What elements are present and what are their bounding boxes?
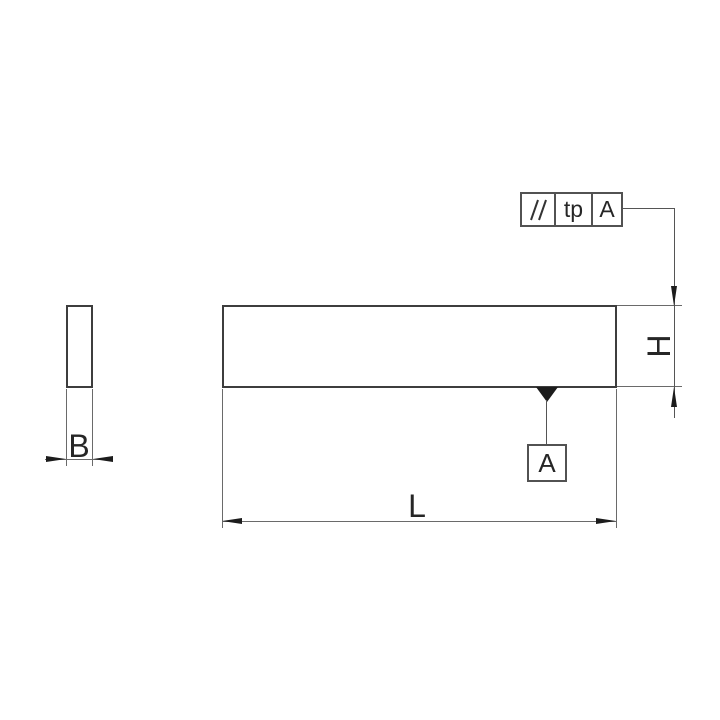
h-arrowhead-up-icon: [671, 387, 677, 407]
fcf-datum-cell: A: [593, 194, 621, 225]
l-dimension-label: L: [402, 490, 432, 522]
b-dimension-label: B: [64, 430, 94, 462]
l-extension-line-right: [616, 389, 617, 528]
datum-label-box: A: [527, 444, 567, 482]
datum-leader-line: [546, 400, 547, 444]
datum-label: A: [538, 448, 555, 479]
datum-triangle-icon: [536, 387, 558, 402]
h-arrowhead-down-icon: [671, 286, 677, 306]
fcf-symbol-cell: [522, 194, 556, 225]
fcf-tolerance-cell: tp: [556, 194, 593, 225]
l-arrowhead-right-icon: [596, 518, 616, 524]
parallelism-icon: [527, 198, 549, 222]
b-arrowhead-left-icon: [93, 456, 113, 462]
l-arrowhead-left-icon: [222, 518, 242, 524]
technical-drawing-canvas: B L H tp A A: [0, 0, 720, 720]
b-arrowhead-right-icon: [46, 456, 66, 462]
h-dimension-label: H: [644, 331, 674, 361]
front-view-rectangle: [222, 305, 617, 388]
fcf-leader-line: [623, 208, 675, 209]
l-extension-line-left: [222, 389, 223, 528]
side-view-rectangle: [66, 305, 93, 388]
feature-control-frame: tp A: [520, 192, 623, 227]
